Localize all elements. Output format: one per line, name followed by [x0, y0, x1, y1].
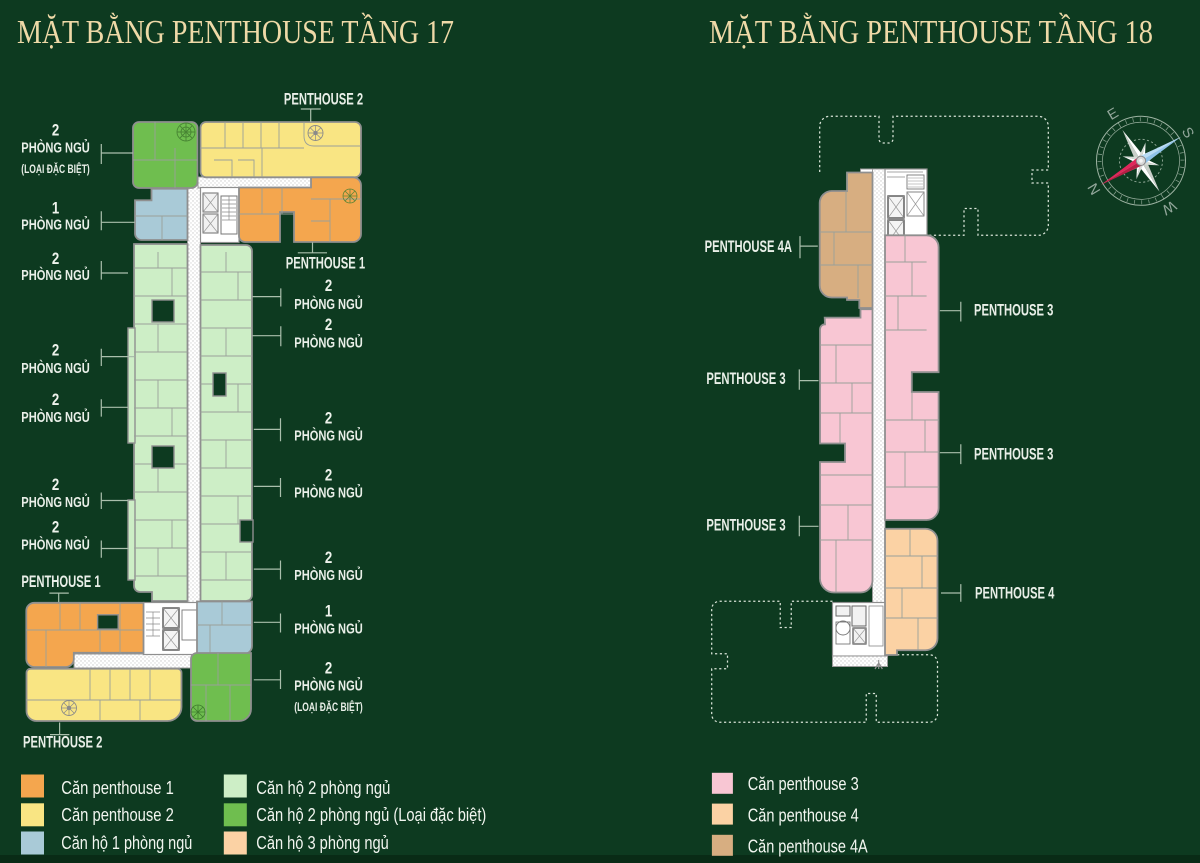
svg-text:2: 2: [325, 277, 332, 296]
svg-text:PHÒNG NGỦ: PHÒNG NGỦ: [294, 677, 362, 694]
svg-text:PHÒNG NGỦ: PHÒNG NGỦ: [294, 620, 362, 637]
svg-text:PHÒNG NGỦ: PHÒNG NGỦ: [294, 334, 362, 351]
svg-text:1: 1: [325, 602, 333, 621]
svg-text:PENTHOUSE 3: PENTHOUSE 3: [974, 300, 1054, 319]
svg-text:PENTHOUSE 4: PENTHOUSE 4: [975, 583, 1055, 602]
svg-text:PENTHOUSE 4A: PENTHOUSE 4A: [705, 237, 792, 256]
svg-text:Căn penthouse 1: Căn penthouse 1: [61, 778, 174, 798]
svg-text:Căn hộ 3 phòng ngủ: Căn hộ 3 phòng ngủ: [256, 833, 389, 853]
svg-text:2: 2: [325, 659, 332, 678]
svg-text:PHÒNG NGỦ: PHÒNG NGỦ: [294, 484, 362, 501]
svg-text:PENTHOUSE 2: PENTHOUSE 2: [284, 89, 364, 108]
svg-text:MẶT BẰNG PENTHOUSE TẦNG 17: MẶT BẰNG PENTHOUSE TẦNG 17: [17, 13, 454, 51]
svg-text:PHÒNG NGỦ: PHÒNG NGỦ: [21, 536, 89, 553]
svg-text:2: 2: [52, 391, 59, 410]
svg-text:PENTHOUSE 3: PENTHOUSE 3: [706, 515, 786, 534]
svg-text:PENTHOUSE 1: PENTHOUSE 1: [21, 572, 101, 591]
svg-text:PHÒNG NGỦ: PHÒNG NGỦ: [21, 267, 89, 284]
svg-text:PENTHOUSE 1: PENTHOUSE 1: [286, 253, 366, 272]
svg-text:PHÒNG NGỦ: PHÒNG NGỦ: [21, 139, 89, 156]
svg-text:Căn hộ 2 phòng ngủ: Căn hộ 2 phòng ngủ: [256, 778, 390, 798]
svg-text:PHÒNG NGỦ: PHÒNG NGỦ: [21, 216, 89, 233]
svg-text:(LOẠI ĐẶC BIỆT): (LOẠI ĐẶC BIỆT): [294, 700, 363, 715]
svg-text:2: 2: [52, 475, 59, 494]
svg-text:(LOẠI ĐẶC BIỆT): (LOẠI ĐẶC BIỆT): [21, 162, 90, 177]
svg-text:Căn penthouse 4A: Căn penthouse 4A: [748, 837, 868, 857]
svg-text:PHÒNG NGỦ: PHÒNG NGỦ: [294, 295, 362, 312]
svg-text:PENTHOUSE 3: PENTHOUSE 3: [706, 369, 786, 388]
svg-text:Căn hộ 2 phòng ngủ (Loại đặc b: Căn hộ 2 phòng ngủ (Loại đặc biệt): [256, 805, 486, 825]
svg-text:2: 2: [325, 466, 332, 485]
svg-text:PENTHOUSE 3: PENTHOUSE 3: [974, 444, 1054, 463]
svg-text:PHÒNG NGỦ: PHÒNG NGỦ: [21, 359, 89, 376]
svg-text:Căn hộ 1 phòng ngủ: Căn hộ 1 phòng ngủ: [61, 833, 192, 853]
svg-text:2: 2: [325, 409, 332, 428]
svg-text:2: 2: [52, 518, 59, 537]
svg-text:PHÒNG NGỦ: PHÒNG NGỦ: [21, 408, 89, 425]
svg-text:PHÒNG NGỦ: PHÒNG NGỦ: [294, 427, 362, 444]
svg-text:2: 2: [325, 549, 332, 568]
svg-text:2: 2: [325, 316, 332, 335]
svg-text:2: 2: [52, 341, 59, 360]
svg-text:2: 2: [52, 121, 59, 140]
svg-text:MẶT BẰNG PENTHOUSE TẦNG 18: MẶT BẰNG PENTHOUSE TẦNG 18: [709, 13, 1153, 51]
svg-text:PHÒNG NGỦ: PHÒNG NGỦ: [294, 567, 362, 584]
svg-text:Căn penthouse 3: Căn penthouse 3: [748, 774, 859, 794]
svg-text:PHÒNG NGỦ: PHÒNG NGỦ: [21, 493, 89, 510]
svg-text:Căn penthouse 2: Căn penthouse 2: [61, 805, 174, 825]
svg-text:Căn penthouse 4: Căn penthouse 4: [748, 806, 859, 826]
